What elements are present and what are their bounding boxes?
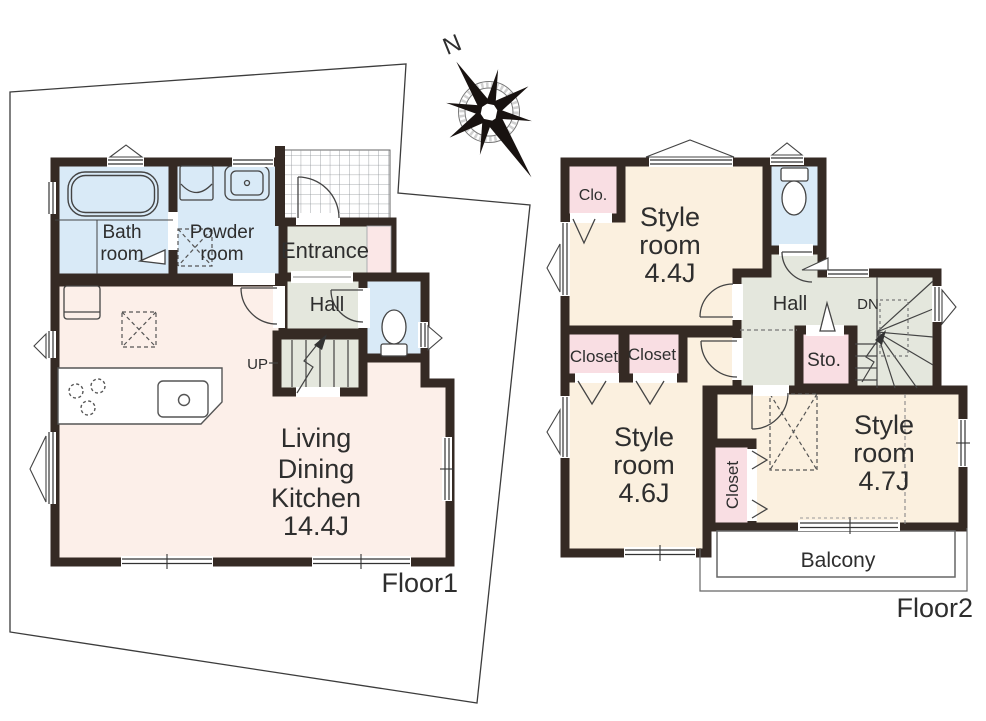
bath-label-2: room xyxy=(100,244,143,265)
style44-label-1: Style xyxy=(640,202,700,232)
floor2-label: Floor2 xyxy=(896,593,973,623)
window-ldk-bottom-left xyxy=(121,554,213,569)
window-ldk-left-large xyxy=(30,432,56,504)
style47-label-3: 4.7J xyxy=(858,466,909,496)
ldk-label-1: Living xyxy=(281,423,352,453)
window-toilet2-top xyxy=(770,143,804,165)
window-bath-left xyxy=(46,182,56,214)
powder-label-1: Powder xyxy=(190,222,255,243)
floor2-plan: Clo. Style room 4.4J Hall DN Sto. Closet… xyxy=(547,140,973,623)
ldk-label-3: Kitchen xyxy=(271,483,361,513)
entrance-label: Entrance xyxy=(281,238,369,263)
style46-label-2: room xyxy=(613,450,675,480)
clo-label: Clo. xyxy=(579,187,607,204)
window-f2-left-lower xyxy=(547,396,570,458)
style44-label-2: room xyxy=(639,230,701,260)
toilet1-fixture xyxy=(381,310,407,356)
window-powder-top xyxy=(232,157,274,167)
style44-label-3: 4.4J xyxy=(644,258,695,288)
shoe-cabinet xyxy=(367,226,391,276)
style47-label-2: room xyxy=(853,438,915,468)
window-style44-top xyxy=(646,140,734,167)
closet2-label: Closet xyxy=(628,345,676,364)
window-style46-bottom xyxy=(624,545,696,561)
style46-label-3: 4.6J xyxy=(618,478,669,508)
balcony-label: Balcony xyxy=(801,549,876,572)
window-ldk-left-small xyxy=(34,331,56,358)
window-ldk-right xyxy=(440,437,454,501)
style46-label-1: Style xyxy=(614,422,674,452)
kitchen-counter xyxy=(58,368,222,424)
window-f2-left-upper xyxy=(547,222,570,296)
up-label: UP xyxy=(247,356,268,373)
dn-label: DN xyxy=(857,296,879,313)
window-style47-right xyxy=(956,419,970,467)
closet1-label: Closet xyxy=(570,347,618,366)
style47-label-1: Style xyxy=(854,410,914,440)
floor1-plan: Bath room Powder room Entrance Hall UP L… xyxy=(30,145,458,598)
hall2-label: Hall xyxy=(773,293,807,315)
hall1-label: Hall xyxy=(310,294,344,316)
floorplan-canvas: N xyxy=(0,0,986,721)
sto-label: Sto. xyxy=(807,350,841,371)
compass-north-label: N xyxy=(439,29,465,61)
bath-label-1: Bath xyxy=(102,222,141,243)
compass-rose-icon: N xyxy=(417,29,571,203)
window-ldk-bottom-right xyxy=(312,554,411,569)
floorplan-page: N xyxy=(0,0,986,721)
ldk-label-2: Dining xyxy=(278,454,355,484)
window-stairs-right xyxy=(932,286,956,324)
toilet2-fixture xyxy=(781,168,808,215)
ldk-label-4: 14.4J xyxy=(283,511,349,541)
floor1-label: Floor1 xyxy=(381,568,458,598)
powder-label-2: room xyxy=(200,244,243,265)
window-bath-top xyxy=(107,145,144,167)
window-toilet1-right xyxy=(418,322,442,350)
closet3-label: Closet xyxy=(723,461,742,509)
